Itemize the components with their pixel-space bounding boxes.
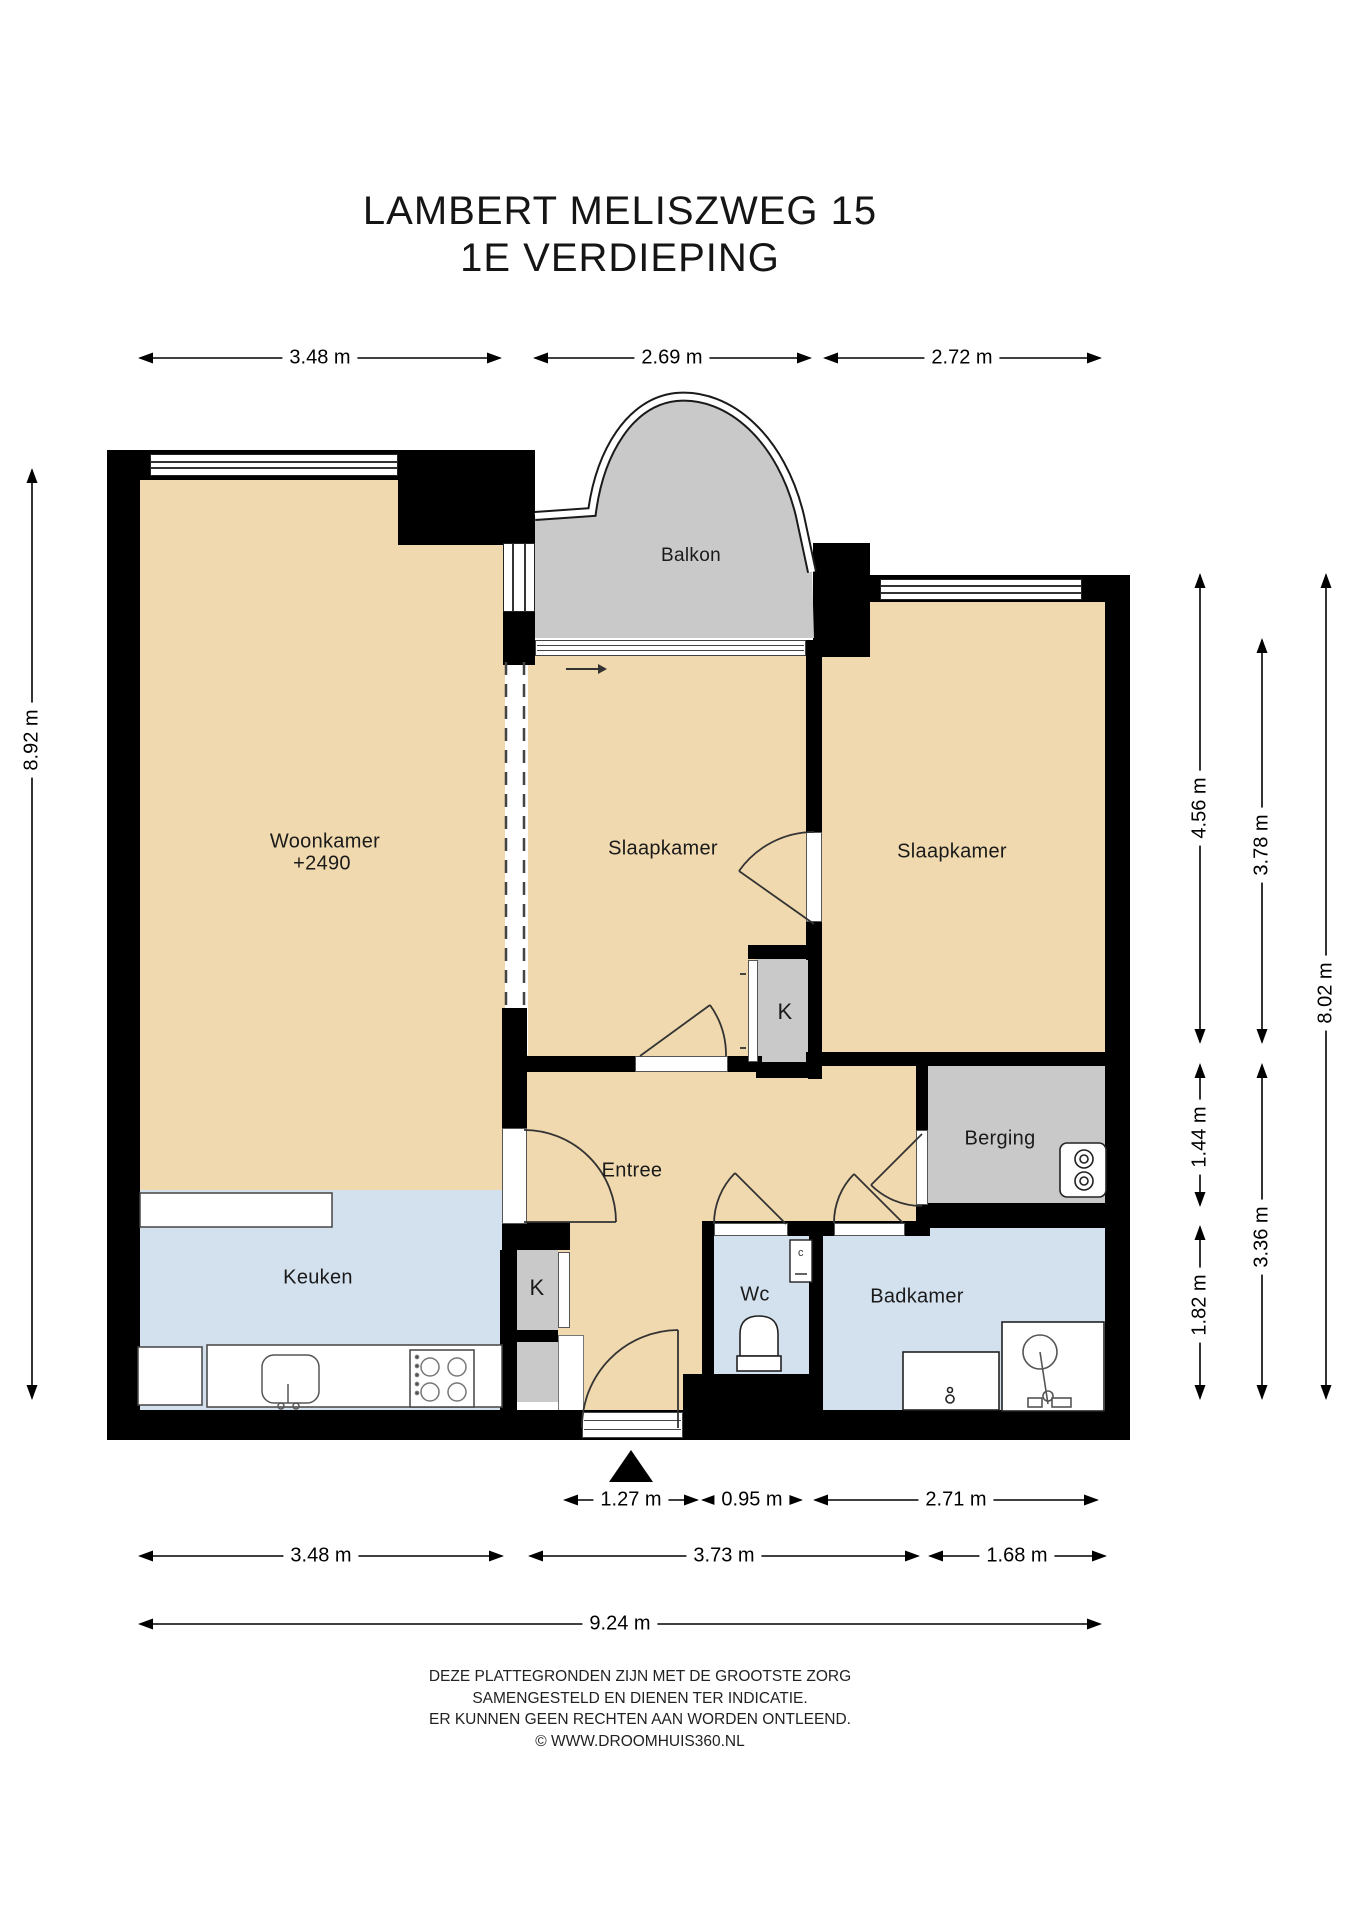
wall [756, 1062, 822, 1078]
door-threshold [916, 1130, 928, 1205]
dim-label: 1.68 m [979, 1545, 1054, 1568]
disclaimer-line: © WWW.DROOMHUIS360.NL [429, 1731, 851, 1753]
dim-label: 1.27 m [593, 1489, 668, 1512]
disclaimer: DEZE PLATTEGRONDEN ZIJN MET DE GROOTSTE … [429, 1666, 851, 1752]
wall [503, 610, 535, 665]
dim-label: 3.48 m [282, 347, 357, 370]
room-label-balkon: Balkon [661, 545, 721, 567]
room-label-badkamer: Badkamer [870, 1286, 964, 1309]
page-title: LAMBERT MELISZWEG 15 1E VERDIEPING [363, 188, 877, 282]
room-label-woonkamer-level: +2490 [293, 853, 351, 876]
wall [916, 1203, 1110, 1228]
dim-label: 1.44 m [1189, 1099, 1212, 1174]
wall [845, 602, 870, 657]
door-threshold [806, 832, 822, 922]
wall [527, 1056, 637, 1072]
wall [916, 1066, 928, 1132]
dim-label: 3.73 m [686, 1545, 761, 1568]
entrance-door-threshold [582, 1412, 683, 1438]
hall-corner-floor [558, 1335, 584, 1412]
room-label-wc: Wc [740, 1284, 769, 1307]
balcony-sliding-door [535, 640, 806, 656]
appliance-niche-floor [517, 1342, 558, 1402]
wall [500, 1250, 517, 1412]
door-threshold [635, 1056, 728, 1072]
dim-label: 8.02 m [1315, 955, 1338, 1030]
dim-label: 0.95 m [714, 1489, 789, 1512]
room-slaapkamer-right-floor [868, 598, 1108, 658]
entrance-marker [609, 1450, 653, 1482]
room-entree-floor [580, 1374, 683, 1412]
dim-label: 2.69 m [634, 347, 709, 370]
dim-label: 1.82 m [1189, 1267, 1212, 1342]
disclaimer-line: ER KUNNEN GEEN RECHTEN AAN WORDEN ONTLEE… [429, 1709, 851, 1731]
door-threshold [714, 1223, 788, 1236]
door-threshold [834, 1223, 905, 1236]
balcony-arch [535, 397, 814, 638]
closet-door [558, 1252, 570, 1328]
dim-label: 3.48 m [283, 1545, 358, 1568]
wall [107, 450, 140, 1440]
closet-label: K [778, 999, 793, 1025]
title-address: LAMBERT MELISZWEG 15 [363, 188, 877, 235]
dim-label: 2.72 m [924, 347, 999, 370]
closet-label: K [530, 1275, 545, 1301]
wall [683, 1374, 823, 1412]
wall [502, 1222, 570, 1250]
window [503, 543, 535, 612]
disclaimer-line: DEZE PLATTEGRONDEN ZIJN MET DE GROOTSTE … [429, 1666, 851, 1688]
dim-label: 3.78 m [1251, 807, 1274, 882]
dim-label: 9.24 m [582, 1613, 657, 1636]
window [880, 579, 1082, 600]
dim-label: 3.36 m [1251, 1199, 1274, 1274]
room-label-woonkamer: Woonkamer [270, 831, 380, 854]
room-keuken-floor [135, 1190, 502, 1415]
closet-door [748, 960, 758, 1062]
dim-label: 2.71 m [918, 1489, 993, 1512]
wall [398, 450, 535, 545]
window [150, 454, 398, 476]
dim-label: 8.92 m [21, 702, 44, 777]
wall [517, 1330, 558, 1342]
disclaimer-line: SAMENGESTELD EN DIENEN TER INDICATIE. [429, 1688, 851, 1710]
wall [806, 1052, 1110, 1066]
wall [502, 1008, 527, 1130]
wall [1105, 575, 1130, 1440]
room-label-slaapkamer-right: Slaapkamer [897, 841, 1007, 864]
dim-label: 4.56 m [1189, 770, 1212, 845]
wall [806, 640, 822, 834]
room-label-keuken: Keuken [283, 1267, 353, 1290]
room-label-entree: Entree [602, 1160, 663, 1183]
room-woonkamer-floor [135, 462, 505, 1190]
wall [702, 1221, 714, 1376]
floorplan-page: LAMBERT MELISZWEG 15 1E VERDIEPING [0, 0, 1358, 1920]
room-label-berging: Berging [964, 1128, 1035, 1151]
door-threshold [502, 1128, 527, 1224]
room-label-slaapkamer-left: Slaapkamer [608, 838, 718, 861]
room-badkamer-floor [823, 1228, 1107, 1412]
title-floor: 1E VERDIEPING [363, 235, 877, 282]
open-passage-dashes [506, 662, 524, 1006]
